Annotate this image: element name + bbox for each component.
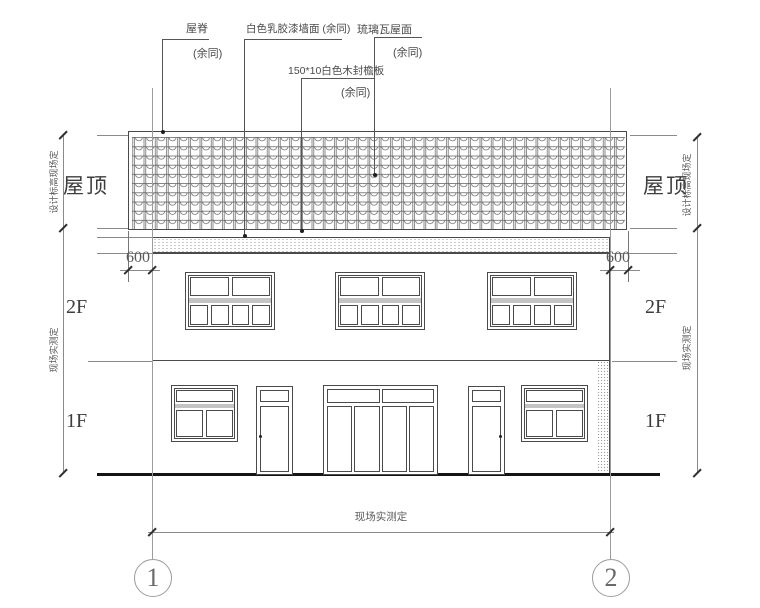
extension-line [97,228,128,229]
fascia-board-note: (余同) [341,84,370,100]
transom-pane [382,389,435,403]
fascia-board-leader-line [301,78,302,231]
casement-pane [402,305,420,325]
door-leaf [382,406,407,472]
level-label-2f-left: 2F [66,296,87,319]
transom-row [190,277,270,296]
floor-divider-line [152,360,610,361]
mullion-band [491,298,573,303]
casement-pane [232,305,250,325]
dim-text-storey-height-left: 现场实测定 [48,305,60,395]
transom-pane [260,390,289,402]
door-leaf [354,406,379,472]
glazed-tile-leader-line [374,37,375,175]
transom-pane [176,390,233,402]
eave-dim-line-right [600,270,640,271]
fascia-board-band [152,237,610,253]
casement-pane [556,410,583,437]
eave-dim-text-left: 600 [126,249,150,267]
dim-text-roof-height-right: 设计标高现场定 [681,140,693,230]
level-label-roof-left: 屋顶 [63,170,109,200]
roof-tile-pattern [132,137,625,229]
door-leaf [327,406,352,472]
window-1f-left [171,385,238,442]
mullion-band [189,298,271,303]
extension-line [97,237,152,238]
level-label-2f-right: 2F [645,296,666,319]
door-knob [499,435,502,438]
casement-pane [252,305,270,325]
casement-pane [554,305,572,325]
door-transom [472,390,501,402]
casement-pane [211,305,229,325]
casement-pane [492,305,510,325]
glazed-tile-note: (余同) [393,44,422,60]
casement-row [176,410,233,437]
ridge-note: (余同) [193,45,222,61]
axis-number: 2 [605,563,618,593]
extension-line [88,361,152,362]
roof-band [128,131,627,230]
door-right [468,386,505,475]
axis-number: 1 [147,563,160,593]
transom-pane [190,277,229,296]
axis-bubble-2: 2 [592,559,630,597]
transom-row [526,390,583,402]
fascia-board-leader-shoulder [301,78,374,79]
mullion-band [175,404,234,408]
transom-row [340,277,420,296]
wall-paint-leader-line [244,39,245,236]
transom-row [176,390,233,402]
fascia-board-label: 150*10白色木封檐板 [288,63,384,78]
casement-row [340,305,420,325]
transom-row [492,277,572,296]
dim-tick [59,469,68,478]
transom-pane [232,277,271,296]
casement-row [190,305,270,325]
door-leaf [260,406,289,472]
casement-pane [382,305,400,325]
transom-pane [534,277,573,296]
ridge-leader-shoulder [162,39,209,40]
extension-line [630,135,677,136]
dim-tick [693,469,702,478]
casement-pane [513,305,531,325]
transom-pane [327,389,380,403]
dim-line-left [63,135,64,473]
door-leaf [409,406,434,472]
dim-line-right [697,137,698,473]
window-1f-right [521,385,588,442]
glazed-tile-leader-shoulder [374,37,422,38]
casement-pane [340,305,358,325]
ridge-leader-line [162,39,163,132]
window-2f-right [487,272,577,330]
mullion-band [339,298,421,303]
extension-line [630,228,677,229]
window-2f-center [335,272,425,330]
window-2f-left [185,272,275,330]
overall-width-dim-line [148,532,614,533]
level-label-1f-right: 1F [645,410,666,433]
door-leaves [327,406,434,472]
door-transom [327,389,434,403]
axis-line-2 [610,88,611,559]
transom-pane [382,277,421,296]
entrance-door-group [323,385,438,475]
axis-bubble-1: 1 [134,559,172,597]
casement-pane [190,305,208,325]
door-leaf [472,406,501,472]
casement-pane [526,410,553,437]
extension-line [97,135,128,136]
transom-pane [492,277,531,296]
casement-pane [361,305,379,325]
dim-text-roof-height-left: 设计标高现场定 [48,137,60,227]
level-label-1f-left: 1F [66,410,87,433]
overall-width-dim-text: 现场实测定 [321,509,441,524]
wall-paint-leader-shoulder [244,39,342,40]
mullion-band [525,404,584,408]
elevation-sheet: 1 2 屋脊 (余同) 白色乳胶漆墙面 (余同) 琉璃瓦屋面 (余同) 150*… [0,0,760,608]
glazed-tile-label: 琉璃瓦屋面 [357,21,412,37]
casement-row [492,305,572,325]
dim-text-storey-height-right: 现场实测定 [681,303,693,393]
casement-row [526,410,583,437]
casement-pane [534,305,552,325]
extension-line [612,361,677,362]
ridge-leader-dot [161,130,165,134]
door-transom [260,390,289,402]
casement-pane [176,410,203,437]
axis-line-1 [152,88,153,559]
transom-pane [472,390,501,402]
ridge-label: 屋脊 [186,20,208,36]
casement-pane [206,410,233,437]
transom-pane [340,277,379,296]
door-knob [259,435,262,438]
door-left [256,386,293,475]
wall-paint-label: 白色乳胶漆墙面 (余同) [246,21,350,36]
transom-pane [526,390,583,402]
glazed-tile-leader-dot [373,173,377,177]
wall-corner-stipple [597,361,609,473]
eave-dim-text-right: 600 [606,249,630,267]
wall-paint-leader-dot [243,234,247,238]
fascia-board-leader-dot [300,229,304,233]
